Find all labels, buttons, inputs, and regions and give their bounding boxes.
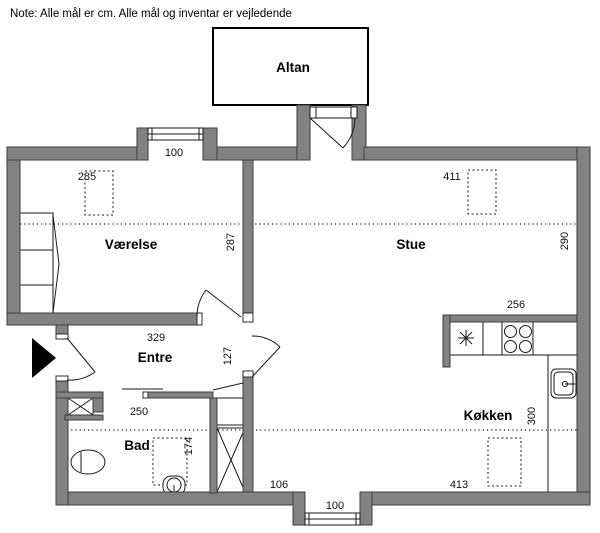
dim-bad-inner: 174	[183, 437, 195, 455]
wardrobe	[20, 213, 59, 317]
entre-closet	[217, 398, 245, 425]
wall-top-mid	[217, 147, 297, 160]
dim-kitchen-counter: 256	[507, 299, 525, 311]
wall-interior-lower	[243, 377, 253, 492]
dim-vaerelse-window: 100	[165, 147, 183, 159]
wall-bottom-window-post-left	[293, 492, 305, 525]
room-label-stue: Stue	[396, 237, 426, 252]
ventilation-shaft-large	[217, 428, 245, 492]
ventilation-shaft-small	[68, 398, 93, 415]
furniture-layer	[20, 170, 577, 495]
table-outline-koekken	[488, 438, 521, 486]
wall-interior-upper	[243, 160, 253, 313]
entrance-arrow-icon	[32, 338, 56, 378]
balcony-door-swing	[310, 118, 355, 148]
wall-vaerelse-bottom	[7, 313, 197, 325]
dim-koekken-depth: 300	[526, 407, 538, 425]
dim-stue-depth: 290	[559, 232, 571, 250]
wall-bottom-mid	[68, 492, 293, 505]
wall-top-left	[7, 147, 137, 160]
dim-vaerelse-depth: 287	[225, 233, 237, 251]
dim-bad-width: 250	[130, 406, 148, 418]
room-label-altan: Altan	[276, 60, 310, 75]
dim-entre-opening: 127	[222, 347, 234, 365]
wall-bad-left	[56, 380, 68, 505]
wall-window-post-right	[203, 128, 217, 160]
door-closet	[213, 383, 243, 390]
wall-shaft-band-bottom	[65, 415, 103, 420]
wall-balcony-post-left	[297, 105, 310, 160]
toilet	[71, 450, 105, 474]
furniture-outline-stue	[468, 170, 496, 214]
wall-bottom-window-post-right	[360, 492, 372, 525]
wall-shaft-band-top	[56, 392, 103, 398]
dim-vaerelse-bed: 285	[78, 171, 96, 183]
wall-shaft-left	[210, 398, 217, 493]
dim-stue-furniture: 411	[443, 171, 461, 183]
sink-symbol-icon	[458, 330, 474, 346]
wall-kitchen-horizontal	[443, 315, 577, 322]
entrance-door	[67, 338, 95, 380]
room-label-vaerelse: Værelse	[105, 237, 158, 252]
wall-left-upper	[7, 147, 20, 325]
floor-plan-page: Note: Alle mål er cm. Alle mål og invent…	[0, 0, 600, 533]
wall-bad-top	[143, 392, 213, 398]
dim-koekken-left: 106	[270, 479, 288, 491]
floor-plan-drawing: Note: Alle mål er cm. Alle mål og invent…	[0, 0, 600, 533]
room-label-koekken: Køkken	[464, 408, 513, 423]
wall-bottom-right	[372, 492, 590, 505]
wall-window-post-left	[137, 128, 148, 160]
plan-note: Note: Alle mål er cm. Alle mål og invent…	[10, 8, 292, 20]
dim-koekken-window: 100	[326, 500, 344, 512]
window-koekken	[305, 513, 360, 525]
door-vaerelse	[197, 290, 241, 317]
door-entre-stue	[252, 336, 280, 377]
wall-top-right	[364, 147, 590, 160]
wall-shaft-stub	[93, 398, 103, 412]
kitchen-sink	[551, 369, 576, 398]
wall-right	[577, 147, 590, 505]
balcony-door-panel	[310, 107, 357, 118]
wall-kitchen-vertical	[443, 315, 450, 367]
dim-vaerelse-width: 329	[147, 332, 165, 344]
room-label-entre: Entre	[138, 350, 173, 365]
room-label-bad: Bad	[124, 438, 150, 453]
dim-koekken-furniture: 413	[450, 479, 468, 491]
window-vaerelse	[148, 128, 203, 140]
